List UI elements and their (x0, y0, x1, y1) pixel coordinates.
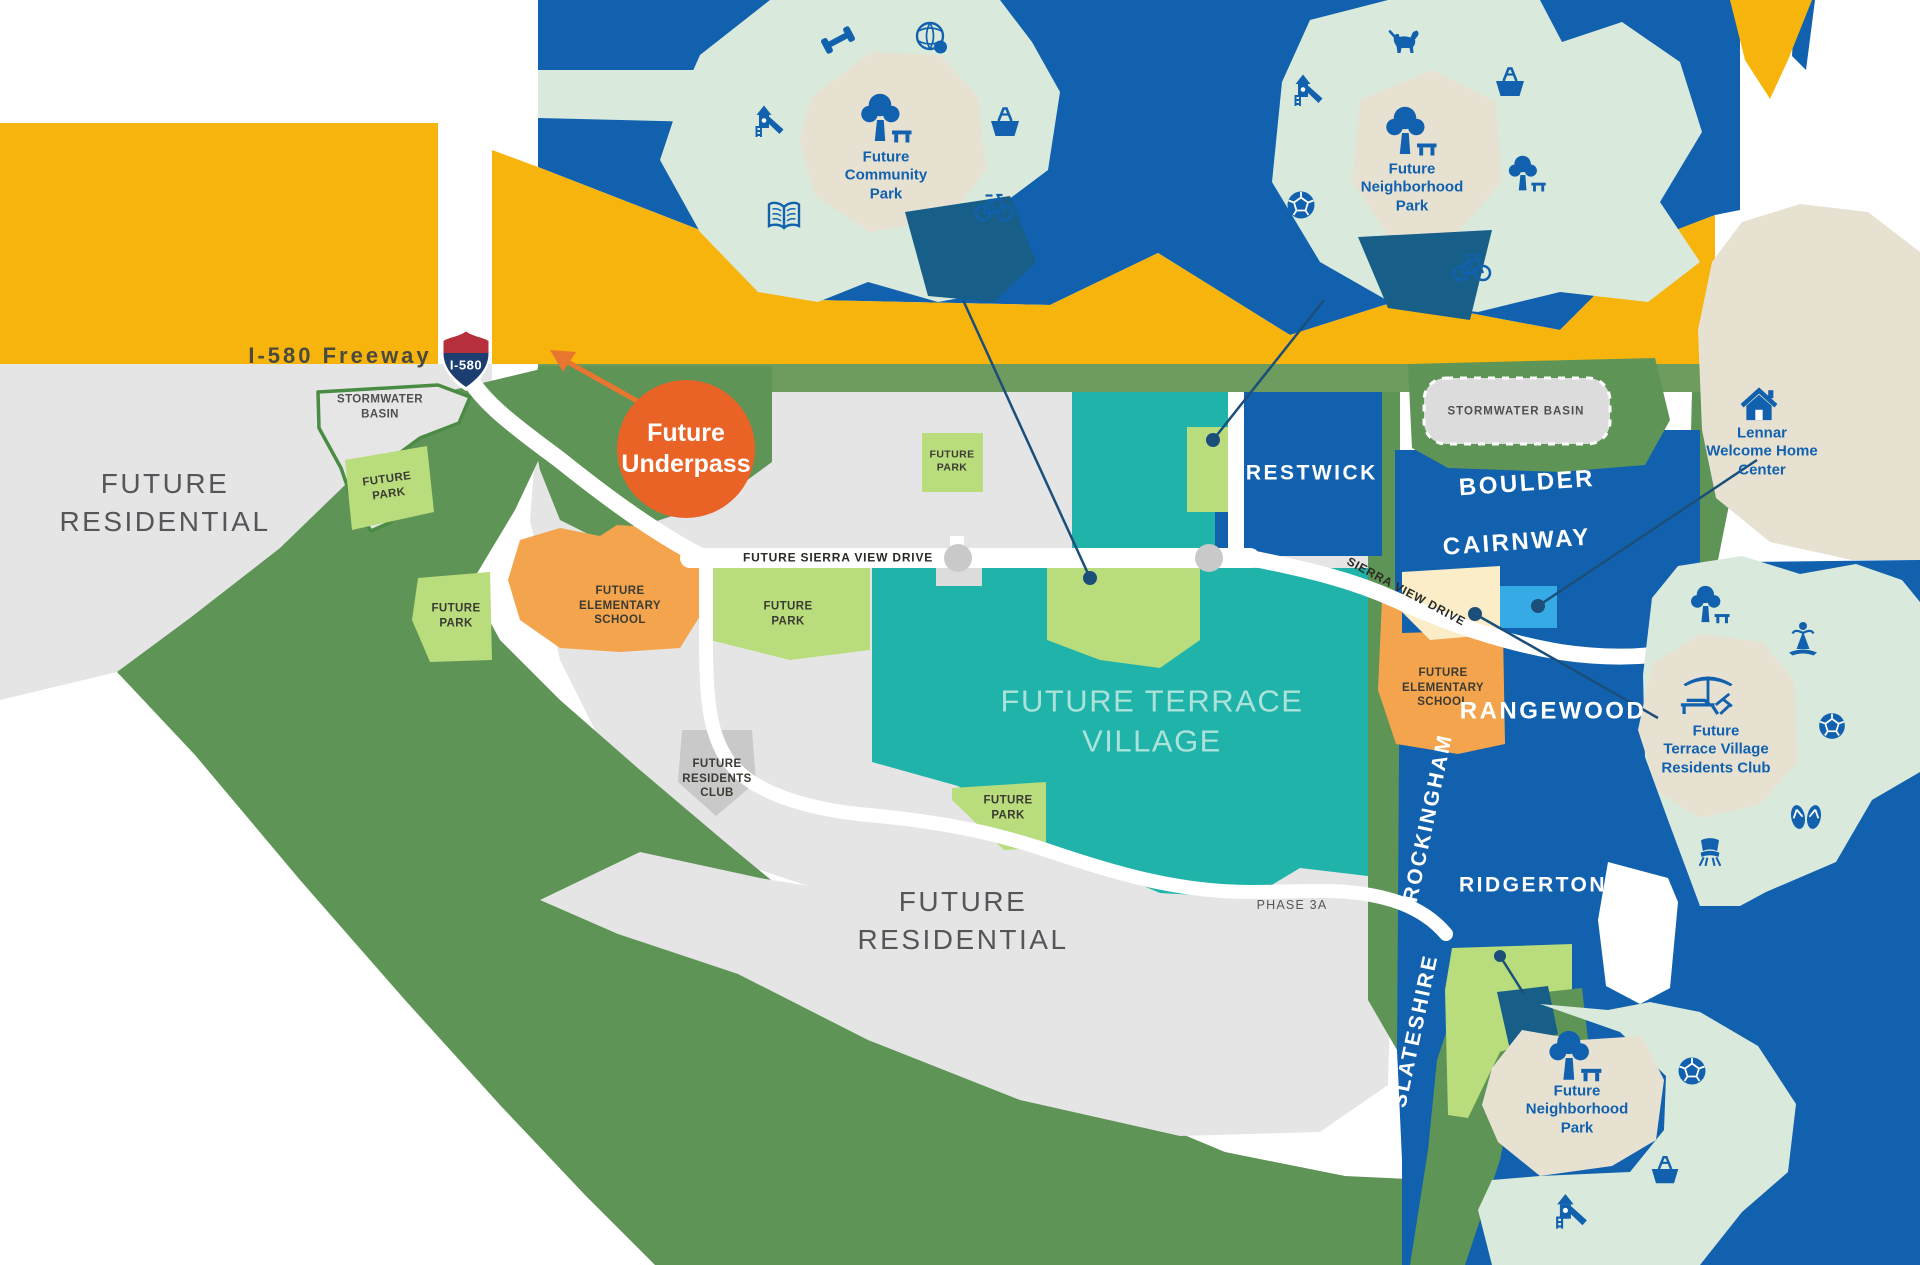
tv-line: FUTURE TERRACE (1001, 682, 1304, 722)
fp-line: PARK (930, 462, 975, 475)
future-park-label: FUTURE PARK (930, 449, 975, 476)
rc-line: Terrace Village (1661, 741, 1770, 759)
freeway-band-west (0, 123, 438, 364)
neighborhood-label-ridgerton[interactable]: RIDGERTON (1459, 873, 1607, 900)
masterplan-map (0, 0, 1920, 1265)
cp-line: Community (845, 167, 928, 185)
npk-line: Neighborhood (1361, 179, 1463, 197)
soccer-ball-icon (1679, 1058, 1706, 1085)
welcome-center-parcel (1500, 586, 1557, 628)
future-residential-label: FUTURE RESIDENTIAL (59, 465, 270, 541)
freeway-label: I-580 Freeway (248, 342, 431, 370)
residents-club-label: Future Terrace Village Residents Club (1661, 723, 1770, 778)
sb-line: STORMWATER (337, 392, 423, 407)
es-line: ELEMENTARY (1402, 681, 1484, 696)
future-park-label: FUTURE PARK (763, 599, 812, 628)
elementary-school-label: FUTURE ELEMENTARY SCHOOL (579, 584, 661, 628)
fr-line: RESIDENTIAL (857, 921, 1068, 959)
whc-line: Lennar (1706, 425, 1817, 443)
underpass-line: Future (647, 418, 725, 449)
fr-line: FUTURE (59, 465, 270, 503)
fp-line: FUTURE (763, 599, 812, 614)
neighborhood-label-rangewood[interactable]: RANGEWOOD (1460, 697, 1647, 728)
welcome-center-area (1698, 204, 1920, 560)
whc-line: Center (1706, 461, 1817, 479)
stormwater-basin-west-label: STORMWATER BASIN (337, 392, 423, 421)
sb-line: BASIN (337, 407, 423, 422)
neighborhood-park-label: Future Neighborhood Park (1361, 161, 1463, 216)
terrace-village-label: FUTURE TERRACE VILLAGE (1001, 682, 1304, 763)
fp-line: FUTURE (930, 449, 975, 462)
npk-line: Park (1526, 1119, 1628, 1137)
frc-line: RESIDENTS (682, 772, 751, 787)
cp-line: Future (845, 149, 928, 167)
fr-line: RESIDENTIAL (59, 503, 270, 541)
community-park-label: Future Community Park (845, 149, 928, 204)
neighborhood-label-crestwick[interactable]: CRESTWICK (1228, 461, 1378, 488)
fr-line: FUTURE (857, 883, 1068, 921)
fp-line: FUTURE (431, 601, 480, 616)
soccer-ball-icon (1288, 192, 1315, 219)
neighborhood-park-label: Future Neighborhood Park (1526, 1083, 1628, 1138)
soccer-ball-icon (1819, 713, 1845, 739)
welcome-home-center-label: Lennar Welcome Home Center (1706, 425, 1817, 480)
future-underpass-badge: Future Underpass (617, 380, 755, 518)
underpass-line: Underpass (621, 449, 750, 480)
shield-label: I-580 (450, 358, 482, 375)
npk-line: Future (1526, 1083, 1628, 1101)
fp-line: PARK (983, 808, 1032, 823)
roundabout (1195, 544, 1223, 572)
fp-line: FUTURE (983, 793, 1032, 808)
future-residents-club-label: FUTURE RESIDENTS CLUB (682, 757, 751, 801)
es-line: FUTURE (1402, 666, 1484, 681)
future-park-label: FUTURE PARK (983, 793, 1032, 822)
es-line: FUTURE (579, 584, 661, 599)
fp-line: PARK (763, 614, 812, 629)
whc-line: Welcome Home (1706, 443, 1817, 461)
rc-line: Future (1661, 723, 1770, 741)
phase-label: PHASE 3A (1257, 897, 1328, 913)
rc-line: Residents Club (1661, 759, 1770, 777)
es-line: SCHOOL (579, 613, 661, 628)
npk-line: Park (1361, 197, 1463, 215)
tv-line: VILLAGE (1001, 722, 1304, 762)
future-residential-label: FUTURE RESIDENTIAL (857, 883, 1068, 959)
stormwater-basin-east-label: STORMWATER BASIN (1448, 405, 1585, 420)
future-sierra-view-drive-label: FUTURE SIERRA VIEW DRIVE (743, 550, 933, 565)
cp-line: Park (845, 185, 928, 203)
frc-line: FUTURE (682, 757, 751, 772)
roundabout (944, 544, 972, 572)
es-line: ELEMENTARY (579, 599, 661, 614)
frc-line: CLUB (682, 786, 751, 801)
npk-line: Neighborhood (1526, 1101, 1628, 1119)
future-club-site (1598, 862, 1678, 1004)
future-park-label: FUTURE PARK (431, 601, 480, 630)
npk-line: Future (1361, 161, 1463, 179)
fp-line: PARK (431, 616, 480, 631)
